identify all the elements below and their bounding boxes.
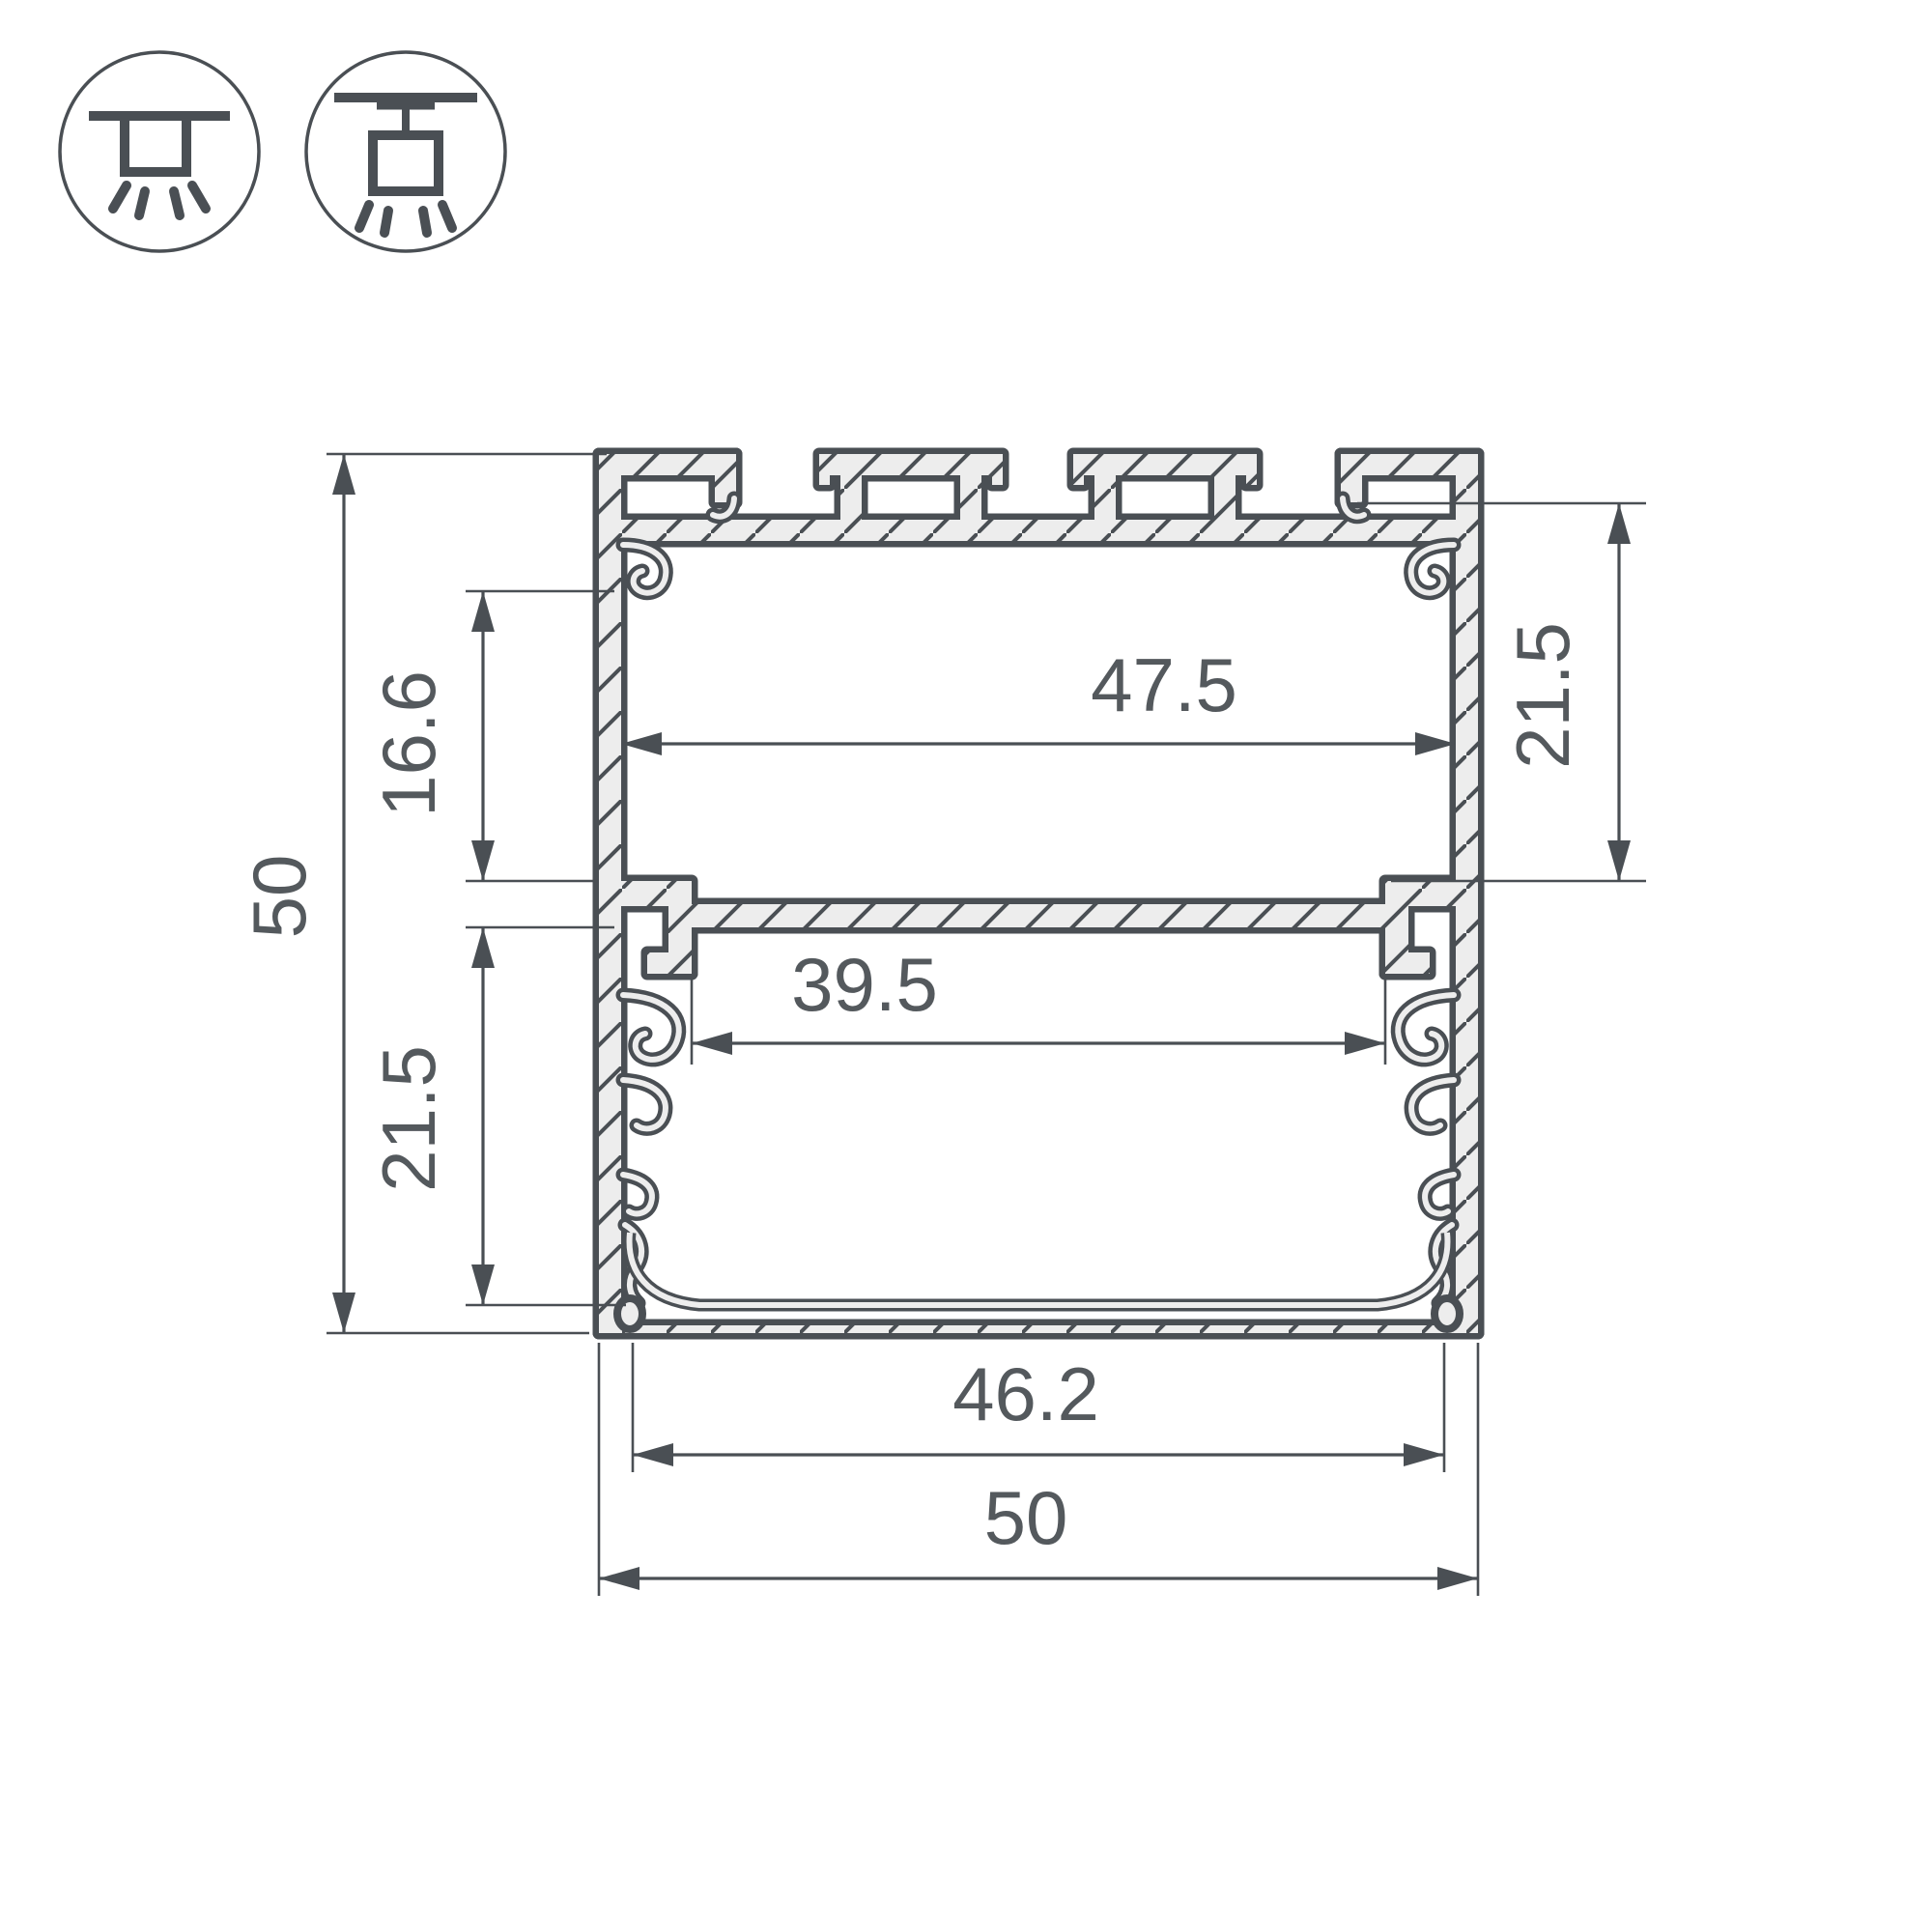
dim-lower-cavity-height: 21.5 [366,927,626,1305]
dim-label-right-cavity: 21.5 [1500,622,1585,769]
surface-ceiling-mount-icon [60,52,259,251]
light-rays-icon [359,205,452,233]
profile-hatching [599,454,1478,1333]
mounting-type-icons [60,52,505,251]
diffuser-screen [617,1233,1460,1329]
dim-overall-height: 50 [237,454,607,1333]
light-rays-icon [113,185,206,215]
dim-right-cavity-depth: 21.5 [1357,503,1646,881]
dim-label-led-slot: 39.5 [791,942,938,1027]
dim-inner-width: 47.5 [621,642,1456,755]
dim-label-lower-cavity: 21.5 [366,1045,451,1192]
dim-label-upper-cavity: 16.6 [366,670,451,817]
technical-drawing-page: 50 16.6 21.5 21.5 [0,0,1932,1932]
profile-metal-body [599,454,1478,1333]
dimensions: 50 16.6 21.5 21.5 [237,454,1646,1596]
profile-outline [599,454,1478,1333]
led-profile-cross-section-drawing: 50 16.6 21.5 21.5 [0,0,1932,1932]
dim-bottom-inner-width: 46.2 [633,1343,1444,1472]
pendant-suspended-mount-icon [306,52,505,251]
dim-led-slot-width: 39.5 [692,942,1385,1065]
dim-label-overall-width: 50 [984,1475,1068,1560]
dim-upper-cavity-height: 16.6 [366,591,614,881]
dim-label-overall-height: 50 [237,855,322,939]
dim-label-bottom-inner: 46.2 [952,1351,1099,1436]
dim-label-inner-width: 47.5 [1091,642,1237,727]
